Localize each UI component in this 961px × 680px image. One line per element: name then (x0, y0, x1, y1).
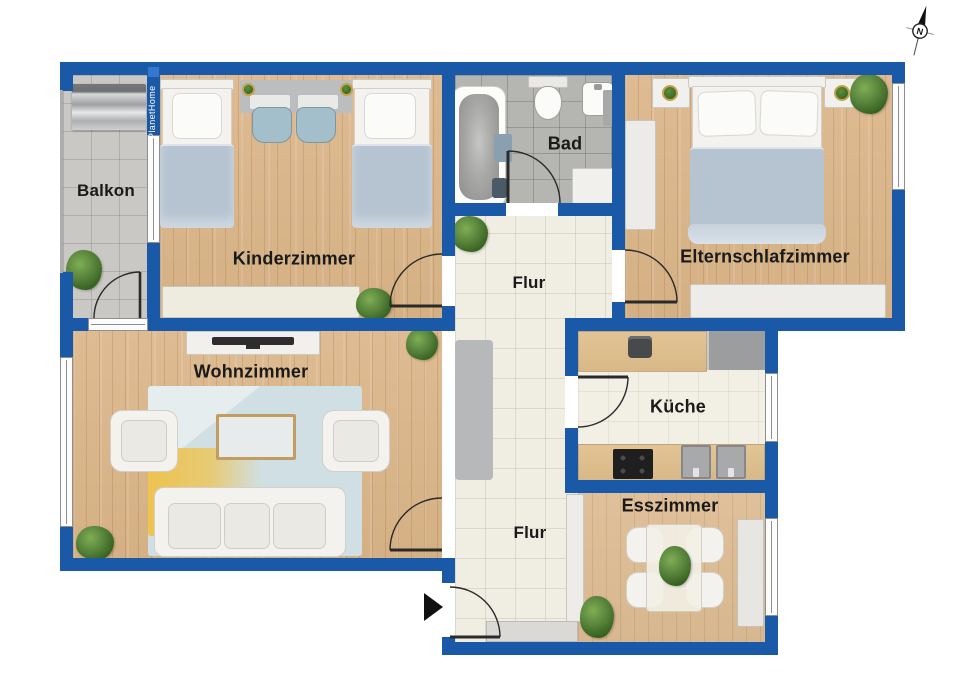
wall-kitchen-bottom (565, 480, 778, 493)
kids-door-opening (442, 256, 455, 306)
floor-plan: N PlanetHome Balkon Kinderzimmer Bad Elt… (0, 0, 961, 680)
nightstand-plant-left (662, 85, 678, 101)
window-kitchen-right (765, 373, 778, 442)
wall-living-bottom (60, 558, 455, 571)
double-bed-pillow-left (697, 90, 757, 137)
armchair-right-cushion (333, 420, 379, 462)
entry-door-opening (442, 583, 455, 637)
hall-cabinet (455, 340, 493, 480)
tv-stand (246, 344, 260, 349)
desk-plant-right (340, 83, 353, 96)
bath-door-opening (506, 203, 558, 216)
hall-plant (452, 216, 488, 252)
balcony-railing (60, 90, 63, 273)
kids-bed-right-pillow (364, 93, 416, 139)
sofa-cushion-left (168, 503, 221, 549)
balcony-door-threshold (88, 318, 148, 331)
fridge (707, 331, 765, 370)
room-label-kueche: Küche (650, 397, 706, 418)
coffee-table (216, 414, 296, 460)
bathroom-cabinet (572, 168, 615, 208)
double-bed-blanket (690, 147, 824, 235)
kids-chair-right (296, 107, 336, 143)
room-label-wohnzimmer: Wohnzimmer (194, 362, 309, 383)
kids-bed-left-pillow (172, 93, 222, 139)
wardrobe (625, 120, 656, 230)
north-compass-icon: N (898, 2, 942, 62)
room-label-elternschlafzimmer: Elternschlafzimmer (680, 247, 850, 268)
nightstand-plant-right (834, 85, 850, 101)
sink-faucet (594, 84, 602, 90)
kitchen-door-opening (565, 376, 578, 428)
sofa-cushion-middle (224, 503, 270, 549)
living-door-opening (442, 500, 455, 550)
parents-dresser (690, 284, 886, 318)
wall-south-right (565, 318, 905, 331)
living-room-plant-bottom (76, 526, 114, 560)
toilet-bowl (534, 86, 562, 120)
dining-sideboard (737, 519, 764, 627)
cooktop (613, 449, 653, 479)
awning (72, 84, 146, 130)
planethome-logo (148, 67, 159, 77)
parents-room-plant (850, 74, 888, 114)
room-label-balkon: Balkon (77, 181, 135, 201)
window-balcony-kids (147, 135, 160, 243)
sink-faucet-right (728, 468, 734, 477)
dining-room-plant (580, 596, 614, 638)
kids-dresser (162, 286, 360, 318)
entrance-arrow-icon (424, 593, 443, 621)
kids-bed-left-blanket (160, 144, 234, 228)
double-bed-ruffle (688, 224, 826, 244)
sofa-cushion-right (273, 503, 326, 549)
wall-bottom (442, 642, 778, 655)
bath-towel (494, 134, 512, 162)
living-room-plant-top (406, 328, 438, 360)
dining-left-cabinet (566, 494, 584, 622)
room-label-flur-unten: Flur (514, 523, 547, 543)
desk-plant-left (242, 83, 255, 96)
armchair-left-cushion (121, 420, 167, 462)
compass-north-label: N (916, 26, 925, 37)
kids-room-plant (356, 288, 392, 320)
bathtub-faucet (492, 178, 507, 198)
room-label-esszimmer: Esszimmer (622, 496, 719, 517)
room-label-bad: Bad (548, 134, 583, 155)
window-dining-right (765, 518, 778, 616)
window-parents-right (892, 83, 905, 190)
planethome-watermark: PlanetHome (146, 77, 161, 139)
sink-faucet-left (693, 468, 699, 477)
double-bed-pillow-right (759, 90, 819, 137)
room-label-kinderzimmer: Kinderzimmer (233, 249, 355, 270)
wall-left-stub-top (60, 75, 73, 91)
kids-bed-right-blanket (352, 144, 432, 228)
dining-table-plant (659, 546, 691, 586)
wall-top (60, 62, 905, 75)
wall-left-stub-mid (60, 272, 73, 318)
doormat (486, 621, 578, 642)
room-label-flur-oben: Flur (513, 273, 546, 293)
kids-chair-left (252, 107, 292, 143)
window-living-left (60, 357, 73, 527)
parents-door-opening (612, 250, 625, 302)
coffee-machine (628, 336, 652, 358)
